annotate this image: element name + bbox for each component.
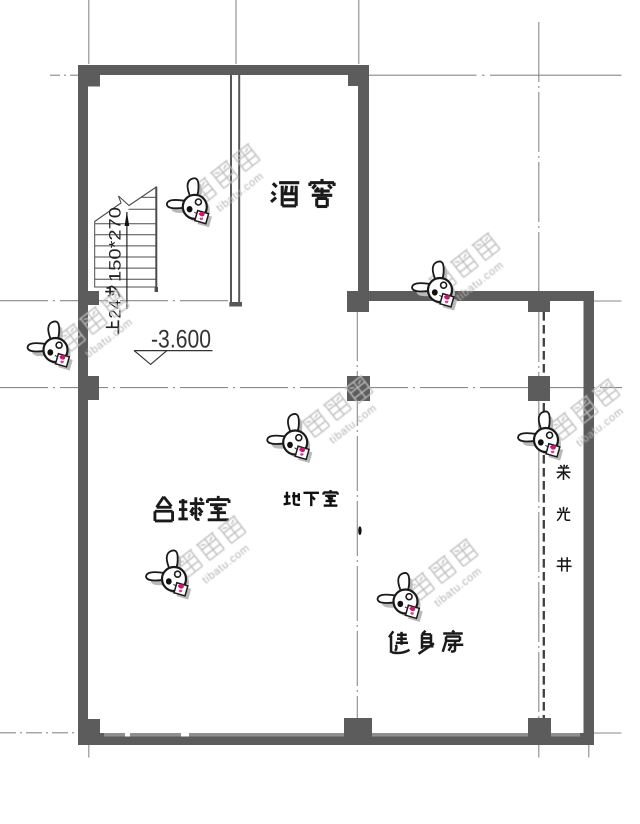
svg-text:-3.600: -3.600 (151, 325, 211, 353)
svg-text:150*270: 150*270 (107, 207, 125, 282)
